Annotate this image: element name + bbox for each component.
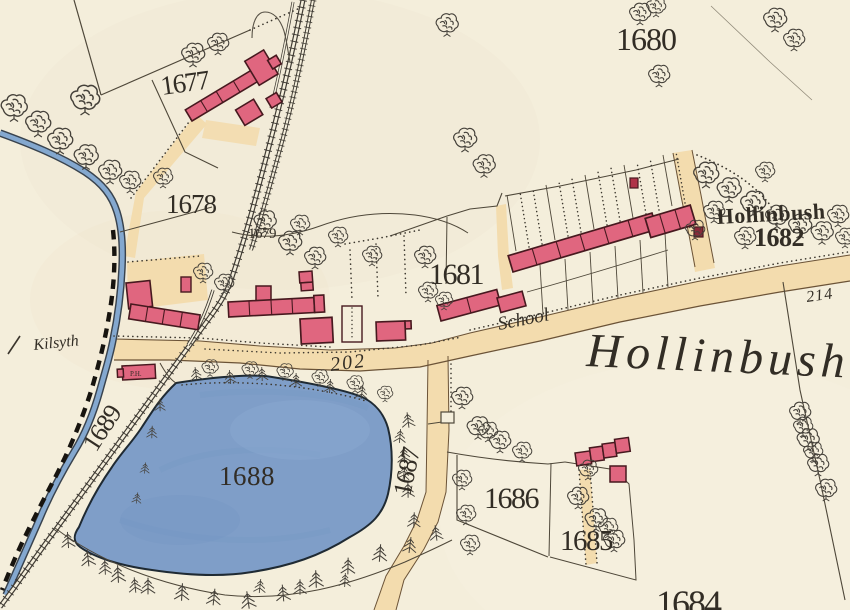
svg-text:1681: 1681 xyxy=(429,258,484,291)
svg-text:1688: 1688 xyxy=(219,461,275,491)
svg-text:1678: 1678 xyxy=(166,189,217,219)
svg-text:P.H.: P.H. xyxy=(130,370,142,378)
svg-text:1685: 1685 xyxy=(560,525,613,557)
svg-text:1682: 1682 xyxy=(754,223,804,252)
svg-text:1679: 1679 xyxy=(248,226,276,242)
svg-text:1686: 1686 xyxy=(484,482,540,515)
svg-text:1684: 1684 xyxy=(656,583,722,610)
svg-text:1680: 1680 xyxy=(616,21,676,57)
svg-text:202: 202 xyxy=(329,350,367,376)
